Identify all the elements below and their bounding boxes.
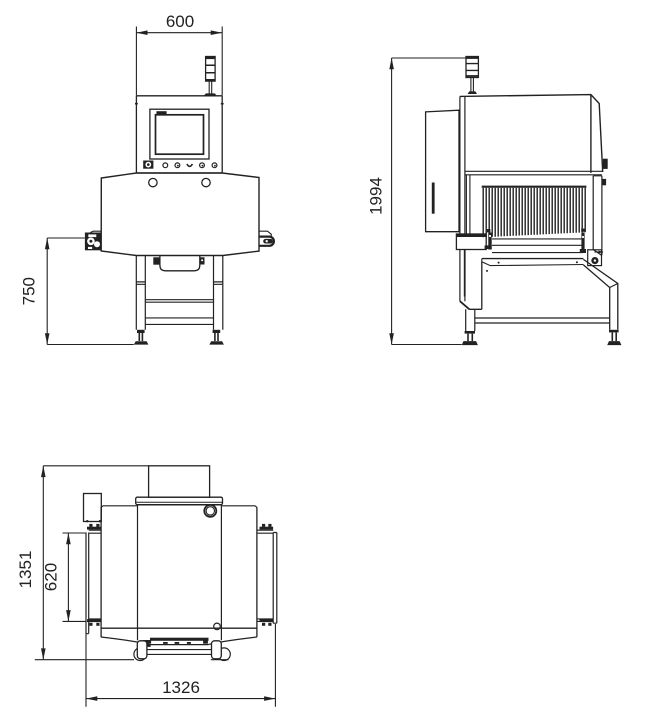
svg-text:1994: 1994 — [367, 177, 386, 215]
svg-text:750: 750 — [20, 277, 39, 305]
svg-text:1351: 1351 — [16, 551, 35, 589]
svg-text:600: 600 — [166, 12, 194, 31]
svg-text:1326: 1326 — [162, 678, 200, 697]
svg-text:620: 620 — [42, 563, 61, 591]
